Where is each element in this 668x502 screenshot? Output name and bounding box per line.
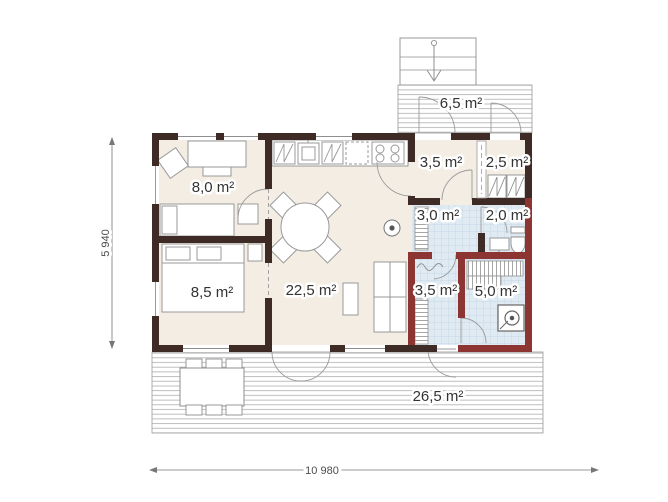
- main-deck: [152, 352, 543, 433]
- wall-segment: [229, 345, 272, 352]
- deck-chair: [206, 405, 222, 415]
- dimension-height: 5 940: [100, 137, 115, 349]
- deck-chair: [226, 405, 242, 415]
- wall-segment: [451, 133, 490, 140]
- room-label-sauna: 5,0 m²: [475, 283, 518, 300]
- wall-segment: [159, 236, 265, 243]
- wall-segment: [408, 140, 415, 162]
- room-label-main-deck: 26,5 m²: [413, 388, 464, 405]
- wall-segment: [152, 204, 159, 282]
- wood-stove-dot: [389, 225, 394, 230]
- deck-dining-set: [180, 359, 244, 415]
- sauna-heater-dot: [510, 316, 515, 321]
- room-label-bathroom: 2,0 m²: [486, 207, 529, 224]
- wall-segment: [265, 298, 272, 345]
- wall-segment: [408, 198, 440, 205]
- nightstand: [248, 244, 262, 261]
- window: [183, 345, 229, 352]
- entry-closet-column: [477, 141, 486, 198]
- wall-segment: [478, 233, 485, 252]
- deck-table: [180, 368, 244, 406]
- stove-burners: [372, 142, 404, 164]
- wall-segment: [152, 133, 178, 140]
- kitchen-counter: [272, 138, 408, 166]
- room-label-washroom: 3,5 m²: [415, 282, 458, 299]
- wall-segment: [265, 140, 272, 189]
- window: [316, 133, 352, 140]
- dim-arrow-icon: [109, 137, 115, 145]
- wall-segment: [258, 133, 316, 140]
- floor-plan-page: 8,0 m² 8,5 m² 22,5 m² 3,5 m² 2,5 m² 3,0 …: [0, 0, 668, 502]
- wet-wall-segment: [458, 259, 465, 318]
- bed-pillow: [197, 247, 221, 260]
- dimension-width-label: 10 980: [305, 465, 339, 477]
- wall-segment: [352, 133, 415, 140]
- stairs-outline: [400, 38, 476, 85]
- side-table: [343, 283, 358, 315]
- bed-pillow: [162, 206, 177, 234]
- wet-wall-segment: [458, 345, 532, 352]
- window: [224, 133, 258, 140]
- desk-drawer: [203, 167, 231, 176]
- window: [152, 282, 159, 316]
- floor-plan-drawing: 8,0 m² 8,5 m² 22,5 m² 3,5 m² 2,5 m² 3,0 …: [0, 0, 668, 502]
- dim-arrow-icon: [149, 467, 157, 473]
- bed-pillow: [166, 247, 190, 260]
- room-label-bedroom-small: 8,0 m²: [192, 179, 235, 196]
- desk: [188, 141, 246, 167]
- dim-arrow-icon: [591, 467, 599, 473]
- dimension-height-label: 5 940: [100, 229, 112, 257]
- deck-chair: [186, 405, 202, 415]
- round-dining-table: [281, 203, 329, 251]
- room-label-storage: 2,5 m²: [486, 154, 529, 171]
- counter-dashed-unit: [346, 142, 368, 164]
- wall-segment: [472, 198, 532, 205]
- wall-segment: [152, 140, 159, 166]
- window: [345, 345, 385, 352]
- sink-basin: [302, 147, 315, 160]
- wall-segment: [152, 345, 183, 352]
- entry-stairs: [400, 38, 476, 85]
- toilet-tank: [511, 227, 525, 233]
- wall-segment: [520, 133, 532, 140]
- washroom-shelf: [415, 299, 428, 344]
- nightstand: [238, 204, 258, 224]
- wall-segment: [216, 133, 224, 140]
- room-label-hallway: 3,0 m²: [417, 207, 460, 224]
- dim-arrow-icon: [109, 341, 115, 349]
- window: [178, 133, 216, 140]
- window: [152, 166, 159, 204]
- room-label-top-deck: 6,5 m²: [440, 95, 483, 112]
- dimension-width: 10 980: [149, 465, 599, 477]
- toilet-bowl: [511, 237, 525, 253]
- wet-wall-segment: [412, 252, 432, 259]
- room-label-living: 22,5 m²: [286, 282, 337, 299]
- wall-segment: [265, 219, 272, 263]
- wall-segment: [408, 345, 437, 352]
- wall-segment: [330, 345, 345, 352]
- room-label-entry: 3,5 m²: [420, 154, 463, 171]
- sauna-bench-upper: [467, 261, 523, 276]
- room-label-bedroom-large: 8,5 m²: [191, 284, 234, 301]
- wet-wall-segment: [456, 252, 532, 259]
- washbasin: [490, 238, 509, 250]
